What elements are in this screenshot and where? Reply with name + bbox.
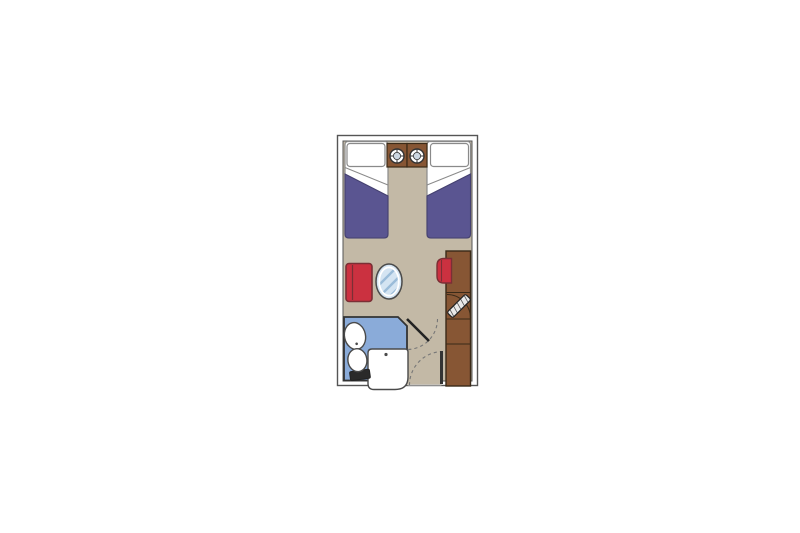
bathroom — [342, 317, 408, 390]
cabin-floor-plan — [0, 0, 800, 533]
lamp-inner — [413, 152, 420, 159]
bed-left-pillow — [347, 144, 385, 167]
bed-right-pillow — [431, 144, 469, 167]
lamp-inner — [393, 152, 400, 159]
shower-tray — [368, 349, 408, 390]
desk-stool-seat — [437, 259, 452, 284]
bed-right — [427, 142, 471, 239]
desk-stool — [437, 259, 452, 284]
floor-plan-page — [0, 0, 800, 533]
bed-left — [345, 142, 388, 239]
shower-drain-dot — [384, 353, 387, 356]
armchair-left-seat — [346, 264, 372, 302]
ceiling-lamp-icon-left — [390, 149, 405, 164]
armchair-left — [346, 264, 372, 302]
entrance-gap — [408, 379, 442, 386]
ceiling-lamp-icon-right — [410, 149, 425, 164]
